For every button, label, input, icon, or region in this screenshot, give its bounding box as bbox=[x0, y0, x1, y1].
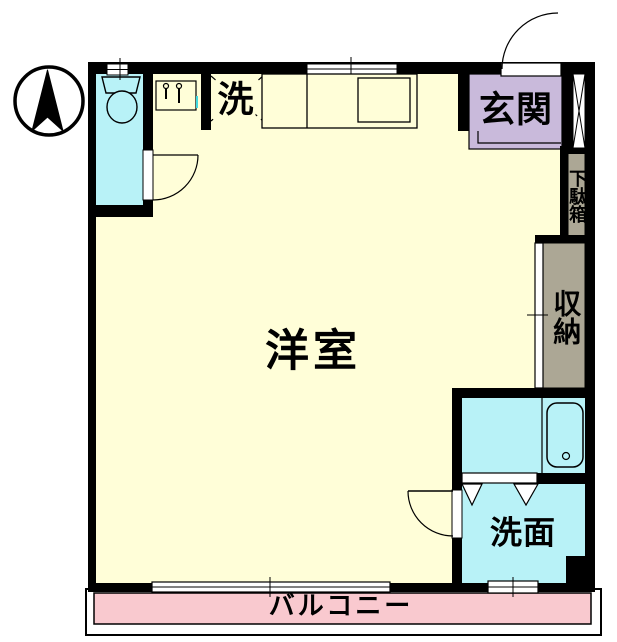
wall-toilet-bottom bbox=[95, 205, 153, 217]
shoe-cabinet-label: 下駄箱 bbox=[568, 169, 586, 223]
kitchen-counter bbox=[262, 74, 417, 128]
wall-storage-top bbox=[535, 235, 585, 243]
wall-entrance-right bbox=[562, 62, 573, 152]
entrance-label: 玄関 bbox=[479, 92, 553, 129]
wall-right bbox=[585, 62, 595, 592]
laundry-label: 洗 bbox=[216, 82, 255, 119]
wall-bath-washroom-divider bbox=[537, 473, 585, 484]
western-room-label: 洋室 bbox=[265, 330, 361, 375]
compass-north-icon bbox=[15, 67, 83, 135]
wall-bath-top bbox=[452, 388, 585, 398]
entrance-door bbox=[501, 13, 561, 76]
balcony-label: バルコニー bbox=[269, 593, 413, 620]
storage-label: 収納 bbox=[551, 289, 580, 345]
wall-bath-left bbox=[452, 388, 462, 583]
wall-laundry-left bbox=[201, 62, 211, 130]
wall-washroom-notch bbox=[566, 556, 585, 583]
floor-plan: 洋室 玄関 下駄箱 収納 洗面 洗 バルコニー bbox=[0, 0, 617, 642]
pipe-shaft bbox=[573, 74, 585, 148]
washroom-label: 洗面 bbox=[490, 517, 556, 550]
wall-entrance-left bbox=[458, 62, 469, 131]
toilet-room-floor bbox=[95, 70, 143, 207]
wall-left bbox=[88, 62, 96, 592]
